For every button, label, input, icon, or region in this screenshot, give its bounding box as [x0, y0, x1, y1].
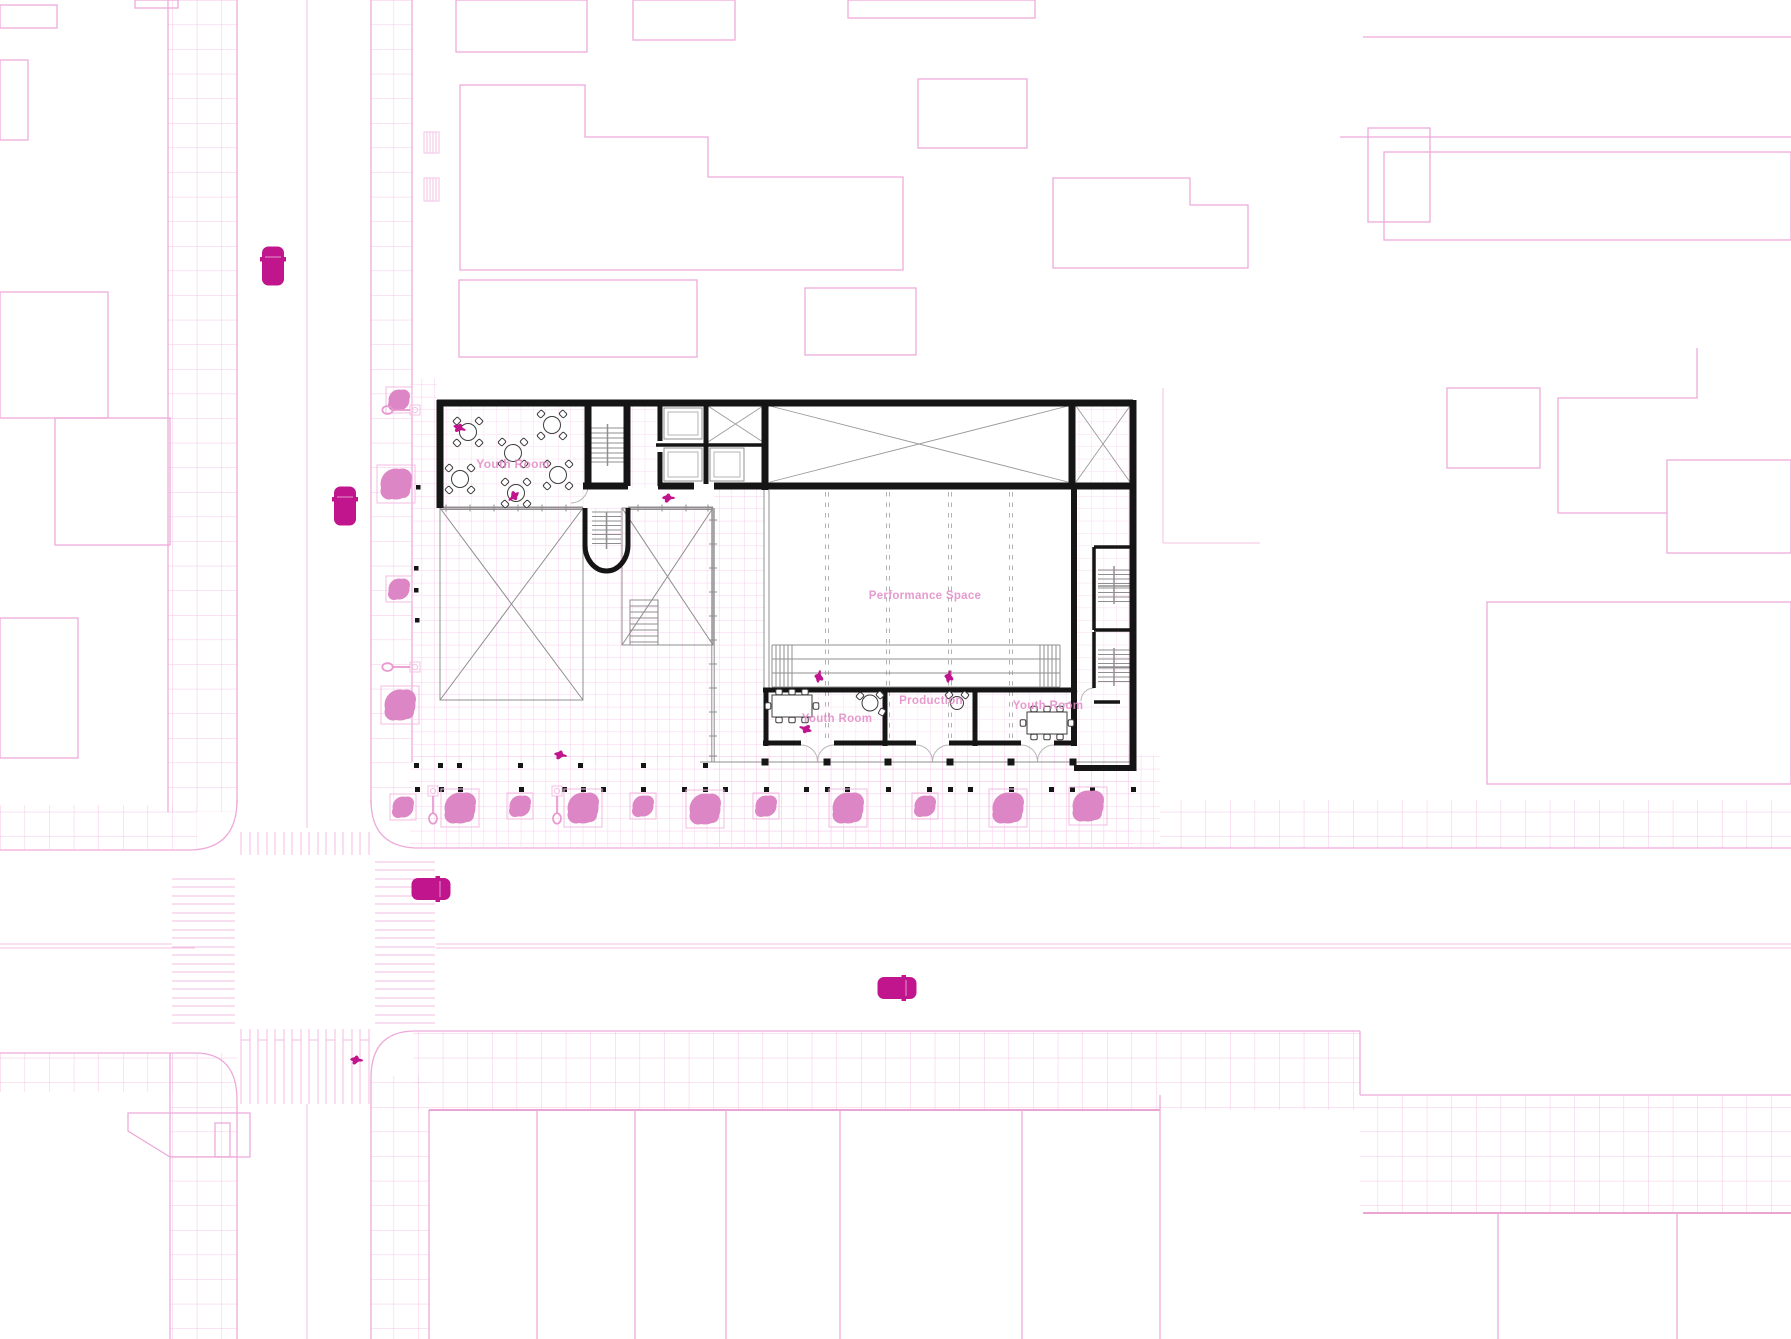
crosswalk-south: [236, 1029, 373, 1104]
room-label-youth-room-lower-left: Youth Room: [802, 713, 873, 725]
crosswalk-west: [172, 873, 235, 1027]
room-label-youth-room-lower-right: Youth Room: [1013, 700, 1084, 712]
plan-drawing: [0, 0, 1791, 1339]
site-context: [0, 0, 1791, 1339]
room-label-youth-room-upper: Youth Room: [476, 457, 549, 471]
site-plan-canvas: Youth Room Performance Space Production …: [0, 0, 1791, 1339]
sidewalk-grids: [0, 0, 1791, 1339]
stair-core-1: [590, 424, 625, 466]
crosswalk-north: [239, 832, 371, 855]
stage-x-zone: [708, 406, 1130, 482]
room-label-production: Production: [899, 695, 963, 707]
room-label-performance-space: Performance Space: [869, 590, 982, 602]
exterior-stair-icon: [424, 178, 439, 201]
exterior-stair-icon: [424, 132, 439, 153]
stage-seating-rows: [772, 645, 1060, 687]
